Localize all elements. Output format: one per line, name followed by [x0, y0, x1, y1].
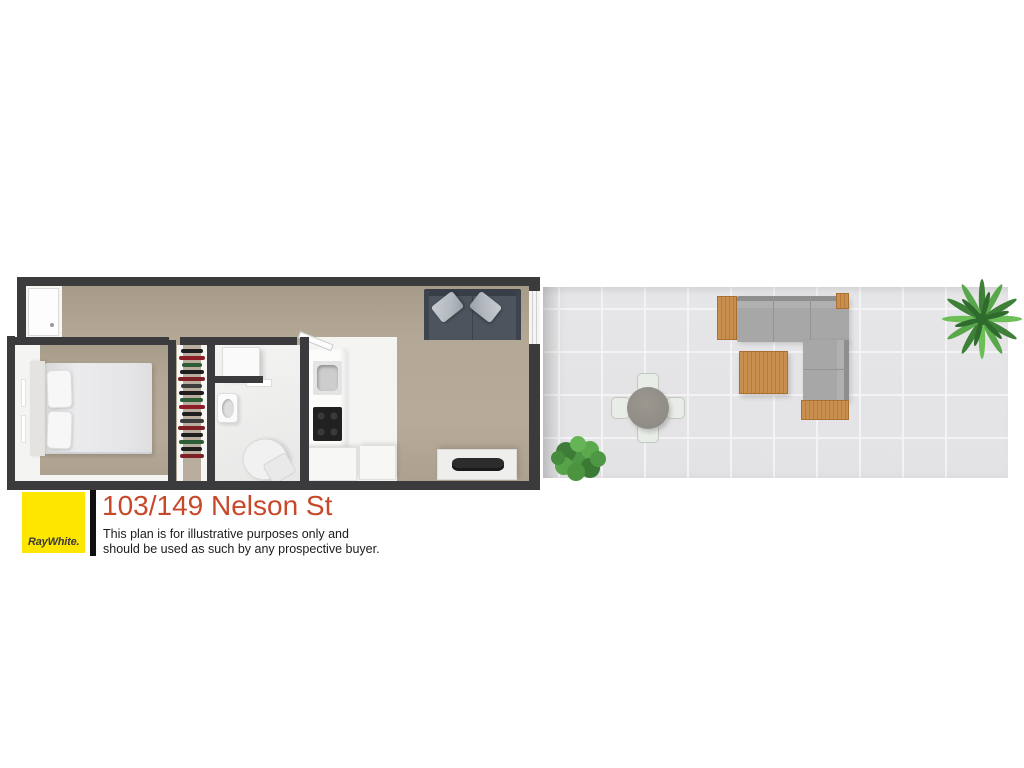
clothes-item	[180, 454, 204, 458]
page-title: 103/149 Nelson St	[102, 491, 332, 521]
dining-table	[627, 387, 669, 429]
clothes-item	[181, 433, 203, 437]
kitchen-cabinet-right	[359, 445, 396, 480]
sink-basin	[222, 399, 234, 418]
sink-bowl	[317, 365, 338, 391]
tv-unit	[437, 449, 517, 480]
sofa-arm-right	[516, 291, 521, 340]
wall-top	[17, 277, 540, 286]
sliding-door-to-terrace	[529, 291, 540, 344]
outdoor-sofa-arm-bottom	[801, 400, 849, 420]
outdoor-coffee-table	[739, 351, 788, 394]
outdoor-sofa-seat-horizontal	[737, 296, 849, 342]
entry-door	[28, 288, 59, 336]
door-handle	[50, 323, 54, 327]
clothes-item	[179, 356, 205, 360]
bathroom-sink	[217, 393, 238, 423]
clothes-item	[182, 363, 202, 367]
wall-left-upper	[17, 277, 26, 343]
outdoor-sofa-seat-vertical	[803, 340, 849, 402]
wall-bathroom-kitchen	[300, 337, 309, 486]
disclaimer-text: This plan is for illustrative purposes o…	[103, 527, 380, 557]
bed-pillow-lower	[46, 411, 72, 450]
wall-bedroom-wardrobe	[168, 340, 176, 486]
clothes-item	[178, 377, 205, 381]
clothes-item	[180, 370, 204, 374]
clothes-item	[179, 440, 204, 444]
clothes-item	[179, 405, 205, 409]
kitchen-sink	[313, 361, 342, 395]
wall-wardrobe-bathroom	[207, 340, 215, 486]
clothes-item	[181, 447, 202, 451]
clothes-item	[180, 419, 204, 423]
floorplan-page: RayWhite. 103/149 Nelson St This plan is…	[0, 0, 1024, 768]
clothes-item	[181, 384, 202, 388]
bed-pillow-upper	[46, 370, 72, 409]
wall-bottom	[7, 481, 540, 490]
bedside-shelf-upper	[21, 379, 26, 407]
clothes-item	[180, 398, 203, 402]
outdoor-sofa-corner-wood	[836, 293, 849, 309]
clothes-item	[181, 349, 203, 353]
raywhite-logo: RayWhite.	[22, 492, 85, 553]
tv	[452, 458, 504, 471]
plant-spiky-icon	[940, 277, 1024, 361]
kitchen-cabinet-left	[306, 447, 357, 481]
clothes-item	[182, 412, 202, 416]
wardrobe-clothes-rack	[178, 349, 205, 475]
washing-machine	[222, 347, 260, 378]
disclaimer-line-2: should be used as such by any prospectiv…	[103, 542, 380, 557]
wall-hall-partition-east	[180, 337, 297, 345]
outdoor-sofa-arm-left	[717, 296, 737, 340]
bedside-shelf-lower	[21, 415, 26, 443]
wall-bathroom-stub	[215, 376, 263, 383]
clothes-item	[179, 391, 204, 395]
disclaimer-line-1: This plan is for illustrative purposes o…	[103, 527, 380, 542]
divider-bar	[90, 490, 96, 556]
cooktop	[313, 407, 342, 441]
clothes-item	[178, 426, 205, 430]
raywhite-logo-text: RayWhite.	[28, 536, 79, 548]
bed-headboard	[30, 361, 45, 456]
wall-left-bedroom	[7, 336, 15, 486]
sofa	[424, 289, 521, 342]
plant-bush-icon	[550, 432, 606, 484]
wall-hall-partition-west	[7, 337, 169, 345]
